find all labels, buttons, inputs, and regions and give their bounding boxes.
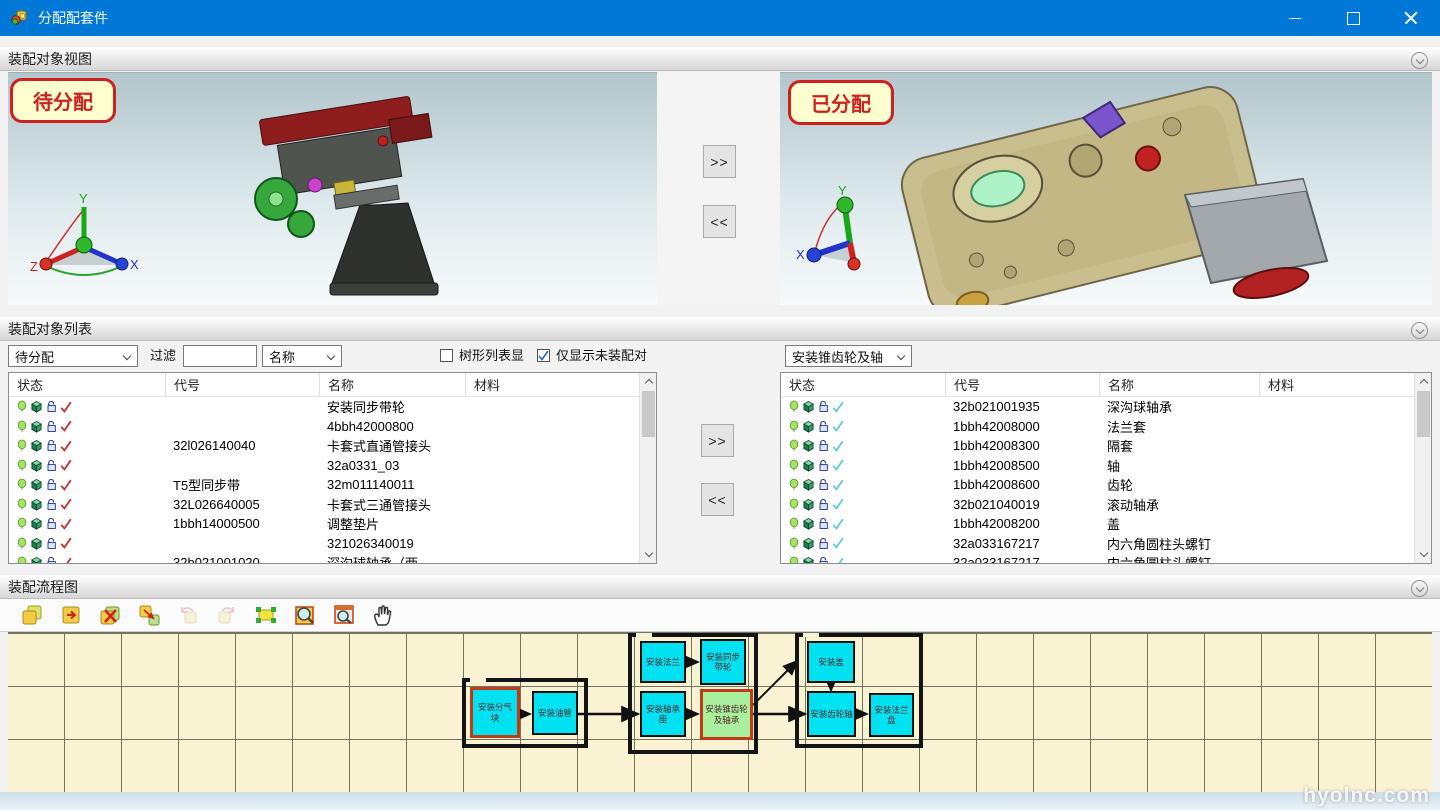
cube-icon (30, 478, 43, 491)
table-row[interactable]: 1bbh42008600齿轮 (781, 475, 1431, 495)
table-header: 状态 代号 名称 材料 (781, 373, 1431, 397)
table-row[interactable]: 32l026140040卡套式直通管接头 (9, 436, 656, 456)
scroll-up-icon[interactable] (640, 373, 657, 390)
field-select-value: 名称 (269, 347, 295, 366)
unlock-icon (818, 420, 829, 433)
assigned-parts-table[interactable]: 状态 代号 名称 材料 32b021001935深沟球轴承 1bbh420080… (780, 372, 1432, 564)
cube-icon (802, 420, 815, 433)
table-row[interactable]: 安装同步带轮 (9, 397, 656, 417)
section-header-list: 装配对象列表 (0, 317, 1440, 341)
section-title: 装配流程图 (8, 577, 78, 597)
unlock-icon (46, 439, 57, 452)
balloon-icon (17, 420, 27, 433)
cube-icon (802, 478, 815, 491)
check-icon (60, 479, 72, 491)
column-name[interactable]: 名称 (319, 373, 465, 396)
unlock-icon (818, 517, 829, 530)
unlock-icon (818, 439, 829, 452)
flow-node[interactable]: 安装法兰 (640, 641, 686, 683)
check-icon (832, 459, 844, 471)
status-icons (9, 517, 165, 530)
assign-right-button[interactable]: >> (703, 145, 736, 178)
section-header-flow: 装配流程图 (0, 575, 1440, 599)
status-icons (9, 498, 165, 511)
zoom-window-icon[interactable] (330, 602, 357, 629)
check-icon (60, 518, 72, 530)
scroll-down-icon[interactable] (1415, 546, 1432, 563)
maximize-button[interactable] (1324, 0, 1382, 36)
section-title: 装配对象视图 (8, 49, 92, 69)
column-code[interactable]: 代号 (165, 373, 319, 396)
filter-label: 过滤 (150, 345, 176, 367)
unlock-icon (818, 400, 829, 413)
collapse-icon[interactable] (1411, 580, 1428, 597)
unlock-icon (46, 537, 57, 550)
flow-node[interactable]: 安装轴承座 (640, 691, 686, 737)
collapse-icon[interactable] (1411, 322, 1428, 339)
tree-view-label: 树形列表显 (459, 345, 524, 367)
balloon-icon (17, 498, 27, 511)
zoom-region-icon[interactable] (291, 602, 318, 629)
cube-icon (802, 459, 815, 472)
check-icon (832, 498, 844, 510)
unlock-icon (46, 400, 57, 413)
flow-toolbar (0, 599, 1440, 632)
status-icons (781, 459, 945, 472)
dialog-distribute-kit: 分配配套件 装配对象视图 (0, 0, 1440, 810)
section-header-viewer: 装配对象视图 (0, 47, 1440, 71)
balloon-icon (789, 478, 799, 491)
status-icons (781, 420, 945, 433)
check-icon (60, 440, 72, 452)
flow-node[interactable]: 安装盖 (807, 641, 855, 683)
chevron-down-icon (123, 352, 131, 360)
pan-hand-icon[interactable] (369, 602, 396, 629)
flow-node[interactable]: 安装分气块 (470, 687, 520, 738)
spacer (0, 305, 1440, 317)
status-icons (9, 537, 165, 550)
check-icon (60, 401, 72, 413)
copy-node-icon[interactable] (18, 602, 45, 629)
cube-icon (802, 517, 815, 530)
viewport-gap: >> << (657, 72, 780, 305)
table-row[interactable]: 1bbh42008000法兰套 (781, 417, 1431, 437)
table-row[interactable]: T5型同步带32m011140011 (9, 475, 656, 495)
minimize-icon (1289, 18, 1301, 19)
flow-node[interactable]: 安装齿轮轴 (807, 691, 856, 737)
app-icon (10, 8, 30, 28)
axis-triad: Y X (794, 185, 890, 281)
balloon-icon (17, 517, 27, 530)
unlock-icon (46, 517, 57, 530)
cube-icon (802, 498, 815, 511)
table-row[interactable]: 4bbh42000800 (9, 417, 656, 437)
window-title: 分配配套件 (38, 8, 108, 28)
tree-view-checkbox[interactable] (440, 349, 453, 362)
group-select[interactable]: 安装锥齿轮及轴 (785, 345, 912, 367)
balloon-icon (789, 537, 799, 550)
chevron-down-icon (327, 352, 335, 360)
scope-select[interactable]: 待分配 (8, 345, 138, 367)
status-icons (9, 400, 165, 413)
cube-icon (30, 517, 43, 530)
check-icon (832, 537, 844, 549)
check-icon (832, 420, 844, 432)
status-icons (9, 420, 165, 433)
unassembled-only-checkbox[interactable] (537, 349, 550, 362)
axis-x-label: X (796, 247, 805, 262)
check-icon (832, 479, 844, 491)
scrollbar-thumb[interactable] (1417, 391, 1430, 437)
filter-input[interactable] (183, 345, 257, 367)
chevron-down-icon (897, 352, 905, 360)
axis-x-label: X (130, 257, 139, 272)
cube-icon (802, 537, 815, 550)
status-icons (9, 459, 165, 472)
spacer (0, 564, 1440, 575)
check-icon (832, 518, 844, 530)
status-icons (781, 400, 945, 413)
balloon-icon (789, 556, 799, 564)
axis-y-label: Y (79, 193, 88, 206)
group-select-value: 安装锥齿轮及轴 (792, 347, 883, 366)
check-icon (538, 350, 549, 361)
flow-node[interactable]: 安装油管 (532, 691, 578, 735)
scroll-down-icon[interactable] (640, 546, 657, 563)
unlock-icon (818, 478, 829, 491)
check-icon (60, 459, 72, 471)
table-row[interactable]: 32L026640005卡套式三通管接头 (9, 495, 656, 515)
unlock-icon (46, 498, 57, 511)
cube-icon (802, 439, 815, 452)
balloon-icon (17, 478, 27, 491)
status-icons (781, 498, 945, 511)
vertical-scrollbar[interactable] (639, 373, 656, 563)
status-icons (9, 478, 165, 491)
list-controls: 待分配 过滤 名称 树形列表显 仅显示未装配对 安装锥齿轮及轴 (0, 341, 1440, 372)
column-status[interactable]: 状态 (781, 373, 945, 396)
close-button[interactable] (1382, 0, 1440, 36)
scrollbar-thumb[interactable] (642, 391, 655, 437)
check-icon (60, 537, 72, 549)
assigned-model-3d[interactable] (855, 77, 1365, 305)
balloon-icon (789, 498, 799, 511)
axis-y-label: Y (838, 185, 847, 198)
balloon-icon (17, 439, 27, 452)
flow-node[interactable]: 安装同步带轮 (700, 639, 746, 685)
column-name[interactable]: 名称 (1099, 373, 1259, 396)
balloon-icon (17, 459, 27, 472)
delete-node-icon[interactable] (96, 602, 123, 629)
cube-icon (30, 537, 43, 550)
pending-tag: 待分配 (10, 78, 116, 123)
check-icon (832, 440, 844, 452)
cube-icon (30, 556, 43, 564)
check-icon (60, 420, 72, 432)
cube-icon (30, 459, 43, 472)
collapse-icon[interactable] (1411, 52, 1428, 69)
column-code[interactable]: 代号 (945, 373, 1099, 396)
scroll-up-icon[interactable] (1415, 373, 1432, 390)
redo-icon[interactable] (213, 602, 240, 629)
table-row[interactable]: 32a033167217内六角圆柱头螺钉 (781, 553, 1431, 564)
axis-triad: Y X Z (30, 193, 142, 285)
list-assign-right-button[interactable]: >> (701, 424, 734, 457)
check-icon (60, 498, 72, 510)
check-icon (832, 557, 844, 564)
status-icons (781, 537, 945, 550)
move-node-icon[interactable] (135, 602, 162, 629)
title-bar: 分配配套件 (0, 0, 1440, 36)
scope-select-value: 待分配 (15, 347, 54, 366)
watermark: hyolnc.com (1303, 784, 1430, 808)
balloon-icon (789, 439, 799, 452)
undo-icon[interactable] (174, 602, 201, 629)
cube-icon (30, 498, 43, 511)
table-row[interactable]: 1bbh14000500调整垫片 (9, 514, 656, 534)
flow-node[interactable]: 安装锥齿轮及轴承 (700, 689, 753, 740)
unlock-icon (818, 459, 829, 472)
unlock-icon (818, 498, 829, 511)
column-material[interactable]: 材料 (465, 373, 656, 396)
status-icons (781, 517, 945, 530)
table-row[interactable]: 32b021040019滚动轴承 (781, 495, 1431, 515)
column-material[interactable]: 材料 (1259, 373, 1431, 396)
table-row[interactable]: 321026340019 (9, 534, 656, 554)
unlock-icon (818, 537, 829, 550)
assigned-tag: 已分配 (788, 80, 894, 125)
table-row[interactable]: 1bbh42008300隔套 (781, 436, 1431, 456)
balloon-icon (789, 459, 799, 472)
table-row[interactable]: 32a033167217内六角圆柱头螺钉 (781, 534, 1431, 554)
section-title: 装配对象列表 (8, 319, 92, 339)
balloon-icon (17, 537, 27, 550)
unassembled-only-label: 仅显示未装配对 (556, 345, 656, 367)
maximize-icon (1347, 12, 1360, 25)
unlock-icon (46, 420, 57, 433)
spacer (0, 36, 1440, 47)
unlock-icon (818, 556, 829, 564)
cube-icon (802, 400, 815, 413)
status-icons (781, 478, 945, 491)
flow-canvas[interactable]: 安装分气块 安装油管 安装法兰 安装同步带轮 安装轴承座 安装锥齿轮及轴承 安装… (8, 632, 1432, 792)
check-icon (60, 557, 72, 564)
cube-icon (30, 420, 43, 433)
pending-model-3d[interactable] (180, 87, 500, 299)
status-icons (9, 439, 165, 452)
check-icon (832, 401, 844, 413)
field-select[interactable]: 名称 (262, 345, 342, 367)
window-bottom-edge (0, 792, 1440, 810)
cube-icon (30, 439, 43, 452)
fit-view-icon[interactable] (252, 602, 279, 629)
table-row[interactable]: 32a0331_03 (9, 456, 656, 476)
table-row[interactable]: 32b021001020深沟球轴承（两... (9, 553, 656, 564)
table-row[interactable]: 1bbh42008200盖 (781, 514, 1431, 534)
table-row[interactable]: 32b021001935深沟球轴承 (781, 397, 1431, 417)
unlock-icon (46, 478, 57, 491)
balloon-icon (17, 400, 27, 413)
table-row[interactable]: 1bbh42008500轴 (781, 456, 1431, 476)
balloon-icon (17, 556, 27, 564)
cube-icon (30, 400, 43, 413)
insert-node-icon[interactable] (57, 602, 84, 629)
column-status[interactable]: 状态 (9, 373, 165, 396)
minimize-button[interactable] (1266, 0, 1324, 36)
balloon-icon (789, 400, 799, 413)
vertical-scrollbar[interactable] (1414, 373, 1431, 563)
unlock-icon (46, 459, 57, 472)
list-assign-left-button[interactable]: << (701, 483, 734, 516)
flow-node[interactable]: 安装法兰盘 (869, 693, 914, 737)
table-header: 状态 代号 名称 材料 (9, 373, 656, 397)
cube-icon (802, 556, 815, 564)
balloon-icon (789, 517, 799, 530)
status-icons (781, 439, 945, 452)
close-icon (1404, 11, 1418, 25)
status-icons (9, 556, 165, 564)
axis-z-label: Z (30, 259, 38, 274)
pending-parts-table[interactable]: 状态 代号 名称 材料 安装同步带轮 4bbh42000800 32l02614… (8, 372, 657, 564)
unlock-icon (46, 556, 57, 564)
balloon-icon (789, 420, 799, 433)
assign-left-button[interactable]: << (703, 205, 736, 238)
status-icons (781, 556, 945, 564)
